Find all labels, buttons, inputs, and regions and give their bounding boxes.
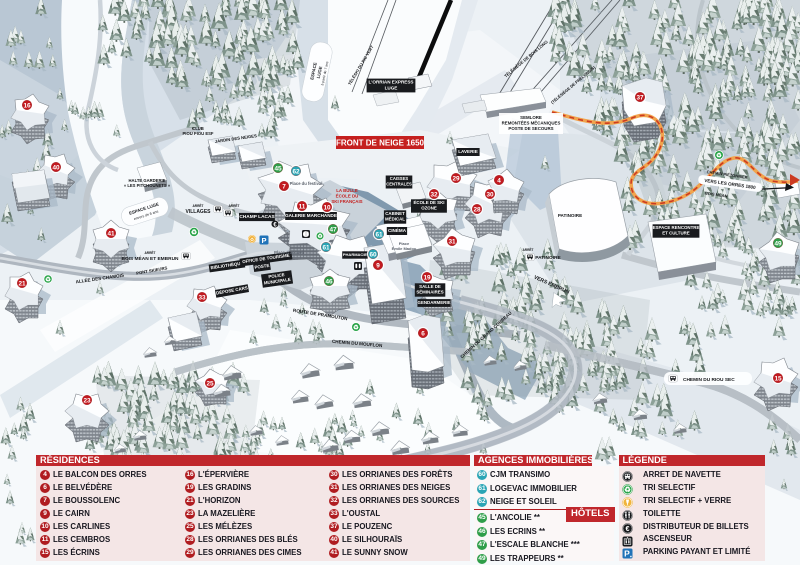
svg-text:9: 9 — [376, 262, 380, 269]
svg-text:29: 29 — [452, 175, 460, 182]
svg-text:ARRÊT: ARRÊT — [523, 247, 534, 252]
svg-text:SALLE DE: SALLE DE — [419, 284, 441, 289]
svg-text:VILLAGES: VILLAGES — [185, 209, 211, 215]
svg-text:MÉDICAL: MÉDICAL — [385, 217, 405, 222]
svg-text:16: 16 — [23, 102, 31, 109]
svg-text:11: 11 — [299, 203, 306, 210]
svg-text:ESPACE RENCONTRE: ESPACE RENCONTRE — [653, 225, 700, 230]
svg-text:CAISSES: CAISSES — [390, 176, 409, 181]
svg-text:37: 37 — [636, 94, 644, 101]
svg-text:15: 15 — [774, 375, 782, 382]
svg-text:« LES PITCHOUNETS »: « LES PITCHOUNETS » — [124, 183, 171, 188]
svg-text:28: 28 — [473, 206, 481, 213]
svg-text:SKI FRANÇAIS: SKI FRANÇAIS — [331, 199, 362, 204]
svg-text:33: 33 — [198, 294, 206, 301]
svg-text:POSTE DE SECOURS: POSTE DE SECOURS — [508, 126, 553, 131]
svg-text:LAVERIE: LAVERIE — [458, 149, 478, 154]
svg-text:€: € — [626, 524, 630, 533]
svg-text:♻: ♻ — [317, 233, 322, 240]
svg-text:31: 31 — [448, 238, 456, 245]
svg-text:CENTRALES: CENTRALES — [386, 182, 412, 187]
svg-text:SEMLORE: SEMLORE — [520, 115, 542, 120]
svg-text:61: 61 — [322, 244, 330, 251]
svg-text:Place d'accueil: Place d'accueil — [274, 250, 304, 255]
svg-text:P: P — [261, 236, 266, 245]
svg-text:21: 21 — [18, 280, 26, 287]
svg-text:ARRÊT: ARRÊT — [229, 203, 240, 208]
svg-text:Place du festival: Place du festival — [290, 181, 323, 186]
svg-text:♻: ♻ — [624, 485, 631, 494]
svg-text:♻: ♻ — [191, 229, 197, 237]
svg-text:ÉCOLE DU: ÉCOLE DU — [336, 193, 359, 198]
svg-text:CHEMIN DU RIOU SEC: CHEMIN DU RIOU SEC — [683, 377, 735, 383]
svg-text:♻: ♻ — [45, 276, 51, 283]
svg-text:46: 46 — [325, 278, 333, 285]
svg-text:SÉMINAIRES: SÉMINAIRES — [416, 290, 443, 295]
svg-text:Émile Madou: Émile Madou — [392, 246, 417, 251]
svg-text:PATINOIRE: PATINOIRE — [535, 255, 561, 261]
svg-text:PIOU PIOU ESF: PIOU PIOU ESF — [183, 131, 214, 136]
svg-text:6: 6 — [421, 330, 425, 337]
svg-text:30: 30 — [486, 191, 494, 198]
svg-text:61: 61 — [375, 231, 383, 238]
svg-text:ARRÊT: ARRÊT — [145, 250, 156, 255]
svg-text:4: 4 — [497, 177, 501, 184]
svg-text:7: 7 — [282, 183, 286, 190]
svg-text:47: 47 — [329, 226, 337, 233]
svg-text:60: 60 — [369, 251, 377, 258]
svg-text:CABINET: CABINET — [385, 211, 405, 216]
svg-text:49: 49 — [774, 240, 782, 247]
svg-text:P: P — [624, 549, 630, 559]
svg-text:CINÉMA: CINÉMA — [388, 226, 407, 233]
svg-text:♻: ♻ — [353, 323, 359, 331]
svg-text:32: 32 — [430, 191, 438, 198]
svg-text:CHAMP LACAS: CHAMP LACAS — [239, 214, 275, 220]
svg-text:25: 25 — [206, 380, 214, 387]
svg-text:REMONTÉES MÉCANIQUES: REMONTÉES MÉCANIQUES — [502, 120, 561, 125]
svg-text:23: 23 — [83, 397, 91, 404]
svg-text:♻: ♻ — [716, 151, 722, 159]
svg-text:41: 41 — [107, 230, 115, 237]
svg-text:PHARMACIE: PHARMACIE — [343, 252, 368, 257]
svg-text:62: 62 — [292, 168, 300, 175]
svg-text:GALERIE MARCHANDE: GALERIE MARCHANDE — [285, 213, 337, 218]
svg-text:40: 40 — [52, 164, 60, 171]
svg-text:19: 19 — [423, 274, 431, 281]
svg-text:ARRÊT: ARRÊT — [193, 203, 204, 208]
svg-text:ET CULTURE: ET CULTURE — [662, 231, 690, 236]
svg-text:LA BULLE: LA BULLE — [336, 188, 358, 193]
svg-text:10: 10 — [323, 204, 331, 211]
svg-text:L'ORRIAN EXPRESS: L'ORRIAN EXPRESS — [369, 80, 414, 85]
svg-text:PATINOIRE: PATINOIRE — [558, 213, 582, 218]
svg-text:FRONT DE NEIGE 1650: FRONT DE NEIGE 1650 — [336, 139, 425, 148]
svg-text:OZONE: OZONE — [421, 206, 437, 211]
svg-text:ÉCOLE DE SKI: ÉCOLE DE SKI — [414, 200, 445, 205]
svg-text:GENDARMERIE: GENDARMERIE — [418, 300, 451, 305]
svg-text:LUGE: LUGE — [385, 85, 398, 90]
svg-text:45: 45 — [274, 165, 282, 172]
